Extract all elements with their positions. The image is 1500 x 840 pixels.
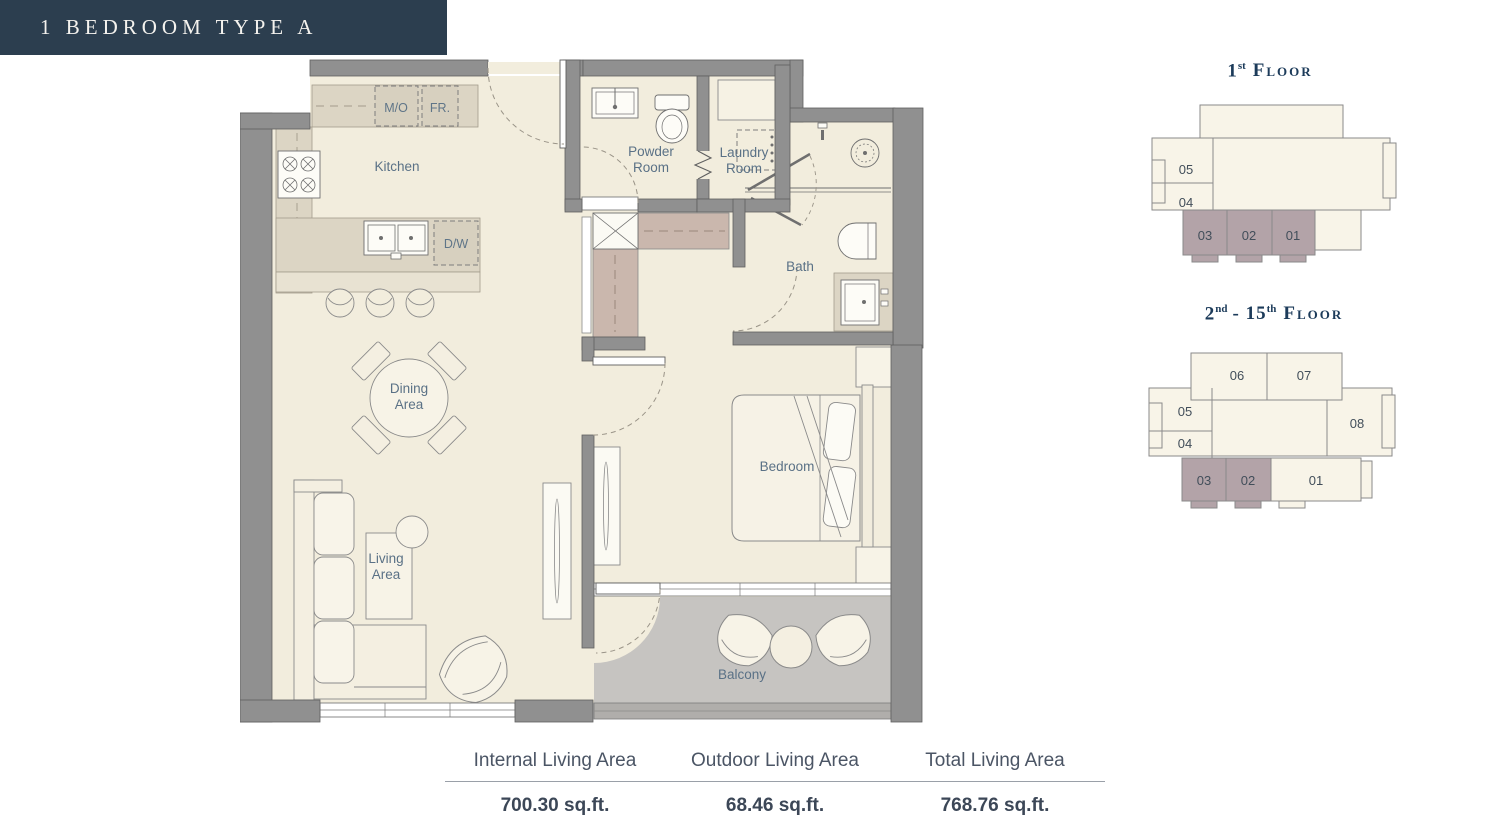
unit-06-label: 06	[1230, 368, 1244, 383]
unit-04-label: 04	[1178, 436, 1192, 451]
title-banner: 1 BEDROOM TYPE A	[0, 0, 447, 55]
dishwasher-label: D/W	[444, 237, 469, 251]
island-stools	[326, 289, 434, 317]
floor-1-keyplan: 05 04 03 02 01	[1130, 93, 1410, 268]
microwave-label: M/O	[384, 101, 408, 115]
unit-02-label: 02	[1241, 473, 1255, 488]
closet-sliding-door	[582, 217, 591, 333]
svg-text:Area: Area	[395, 397, 424, 412]
side-table	[396, 516, 428, 548]
balcony-label: Balcony	[718, 667, 766, 682]
powder-toilet	[655, 95, 689, 143]
svg-text:Area: Area	[372, 567, 401, 582]
living-area-label: Living	[368, 551, 403, 566]
minimap-floor-2-15: 2nd- 15thFloor 0	[1128, 303, 1420, 523]
unit-05-label: 05	[1179, 162, 1193, 177]
bedroom-label: Bedroom	[760, 459, 815, 474]
kitchen-sink	[364, 221, 428, 259]
unit-01-label: 01	[1286, 228, 1300, 243]
floor-2-15-title: 2nd- 15thFloor	[1128, 303, 1420, 325]
laundry-room-label: Laundry	[720, 145, 769, 160]
unit-08-label: 08	[1350, 416, 1364, 431]
unit-01-label: 01	[1309, 473, 1323, 488]
bath-label: Bath	[786, 259, 814, 274]
kitchen-label: Kitchen	[374, 159, 419, 174]
bedroom-door-leaf	[593, 357, 665, 365]
powder-sill	[582, 197, 638, 210]
entry-opening	[488, 62, 563, 74]
unit-03-label: 03	[1197, 473, 1211, 488]
floor-1-title: 1stFloor	[1130, 60, 1410, 82]
bath-vanity	[834, 273, 893, 331]
wall-break-symbol	[692, 151, 714, 179]
internal-area-header: Internal Living Area	[445, 750, 665, 772]
outdoor-area-header: Outdoor Living Area	[665, 750, 885, 772]
total-area-value: 768.76 sq.ft.	[885, 795, 1105, 817]
bedroom-tv-console	[592, 447, 620, 565]
unit-07-label: 07	[1297, 368, 1311, 383]
main-floorplan: Kitchen Powder Room Laundry Room Bath Be…	[240, 55, 925, 727]
bath-toilet	[838, 223, 876, 259]
floorplan-page: 1 BEDROOM TYPE A	[0, 0, 1500, 840]
floor-2-15-keyplan: 06 07 05 04 08 03 02 01	[1129, 336, 1419, 518]
stats-values: 700.30 sq.ft. 68.46 sq.ft. 768.76 sq.ft.	[445, 795, 1105, 817]
living-tv-console	[543, 483, 571, 619]
page-title: 1 BEDROOM TYPE A	[0, 15, 317, 40]
unit-02-label: 02	[1242, 228, 1256, 243]
area-stats: Internal Living Area Outdoor Living Area…	[445, 750, 1105, 817]
balcony-table	[770, 626, 812, 668]
stats-headers: Internal Living Area Outdoor Living Area…	[445, 750, 1105, 782]
dining-area-label: Dining	[390, 381, 428, 396]
powder-room-label: Powder	[628, 144, 674, 159]
balcony-door-leaf	[596, 583, 660, 594]
unit-03-label: 03	[1198, 228, 1212, 243]
svg-text:Room: Room	[633, 160, 669, 175]
internal-area-value: 700.30 sq.ft.	[445, 795, 665, 817]
fridge-label: FR.	[430, 101, 450, 115]
total-area-header: Total Living Area	[885, 750, 1105, 772]
stove	[278, 151, 320, 198]
unit-05-label: 05	[1178, 404, 1192, 419]
minimap-floor-1: 1stFloor 05 04 03 02	[1130, 60, 1410, 273]
svg-text:Room: Room	[726, 161, 762, 176]
entry-door-leaf	[560, 60, 566, 148]
unit-04-label: 04	[1179, 195, 1193, 210]
outdoor-area-value: 68.46 sq.ft.	[665, 795, 885, 817]
